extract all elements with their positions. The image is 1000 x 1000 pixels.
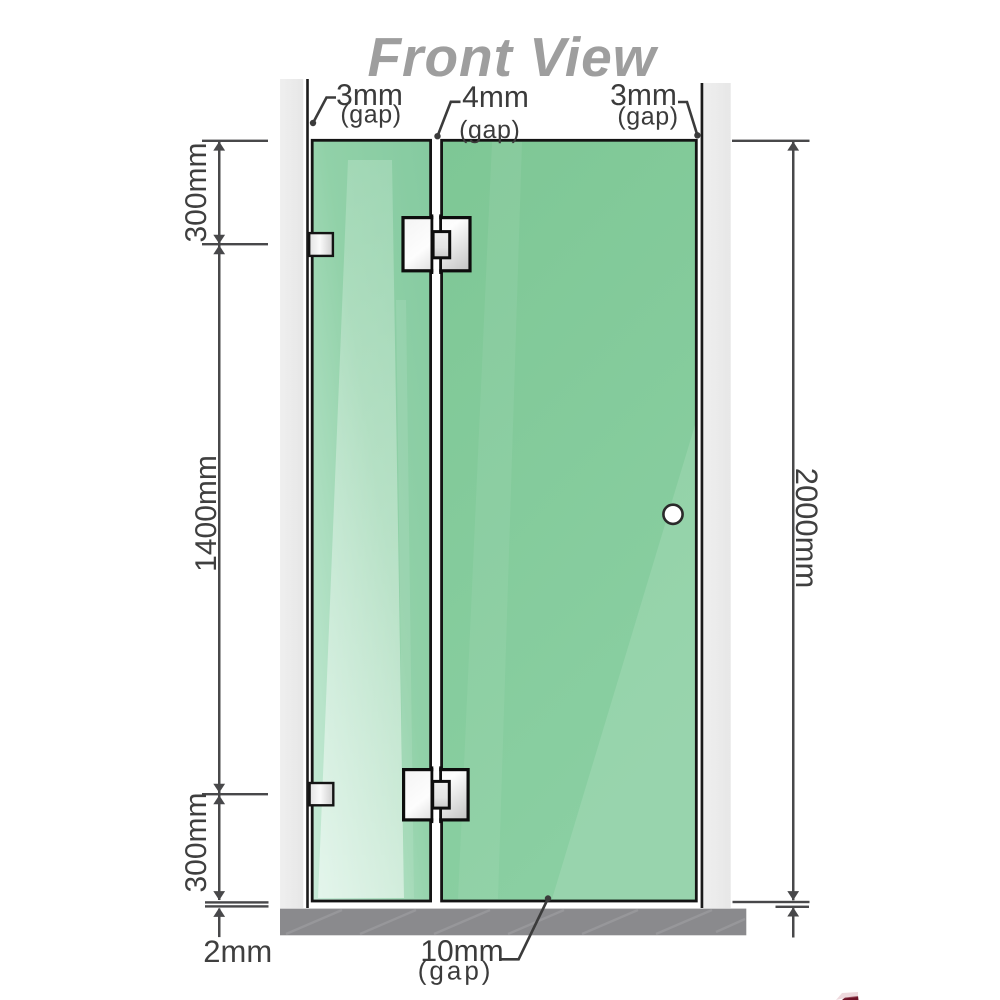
svg-text:300mm: 300mm bbox=[180, 792, 213, 892]
svg-text:1400mm: 1400mm bbox=[190, 455, 223, 572]
svg-text:2000mm: 2000mm bbox=[789, 468, 824, 589]
svg-text:(gap): (gap) bbox=[340, 101, 401, 129]
svg-text:2mm: 2mm bbox=[203, 934, 272, 969]
svg-text:4mm: 4mm bbox=[462, 81, 529, 114]
svg-text:(gap): (gap) bbox=[459, 116, 520, 144]
svg-text:(gap): (gap) bbox=[617, 103, 678, 131]
svg-text:(gap): (gap) bbox=[418, 956, 494, 986]
svg-text:300mm: 300mm bbox=[180, 142, 213, 242]
